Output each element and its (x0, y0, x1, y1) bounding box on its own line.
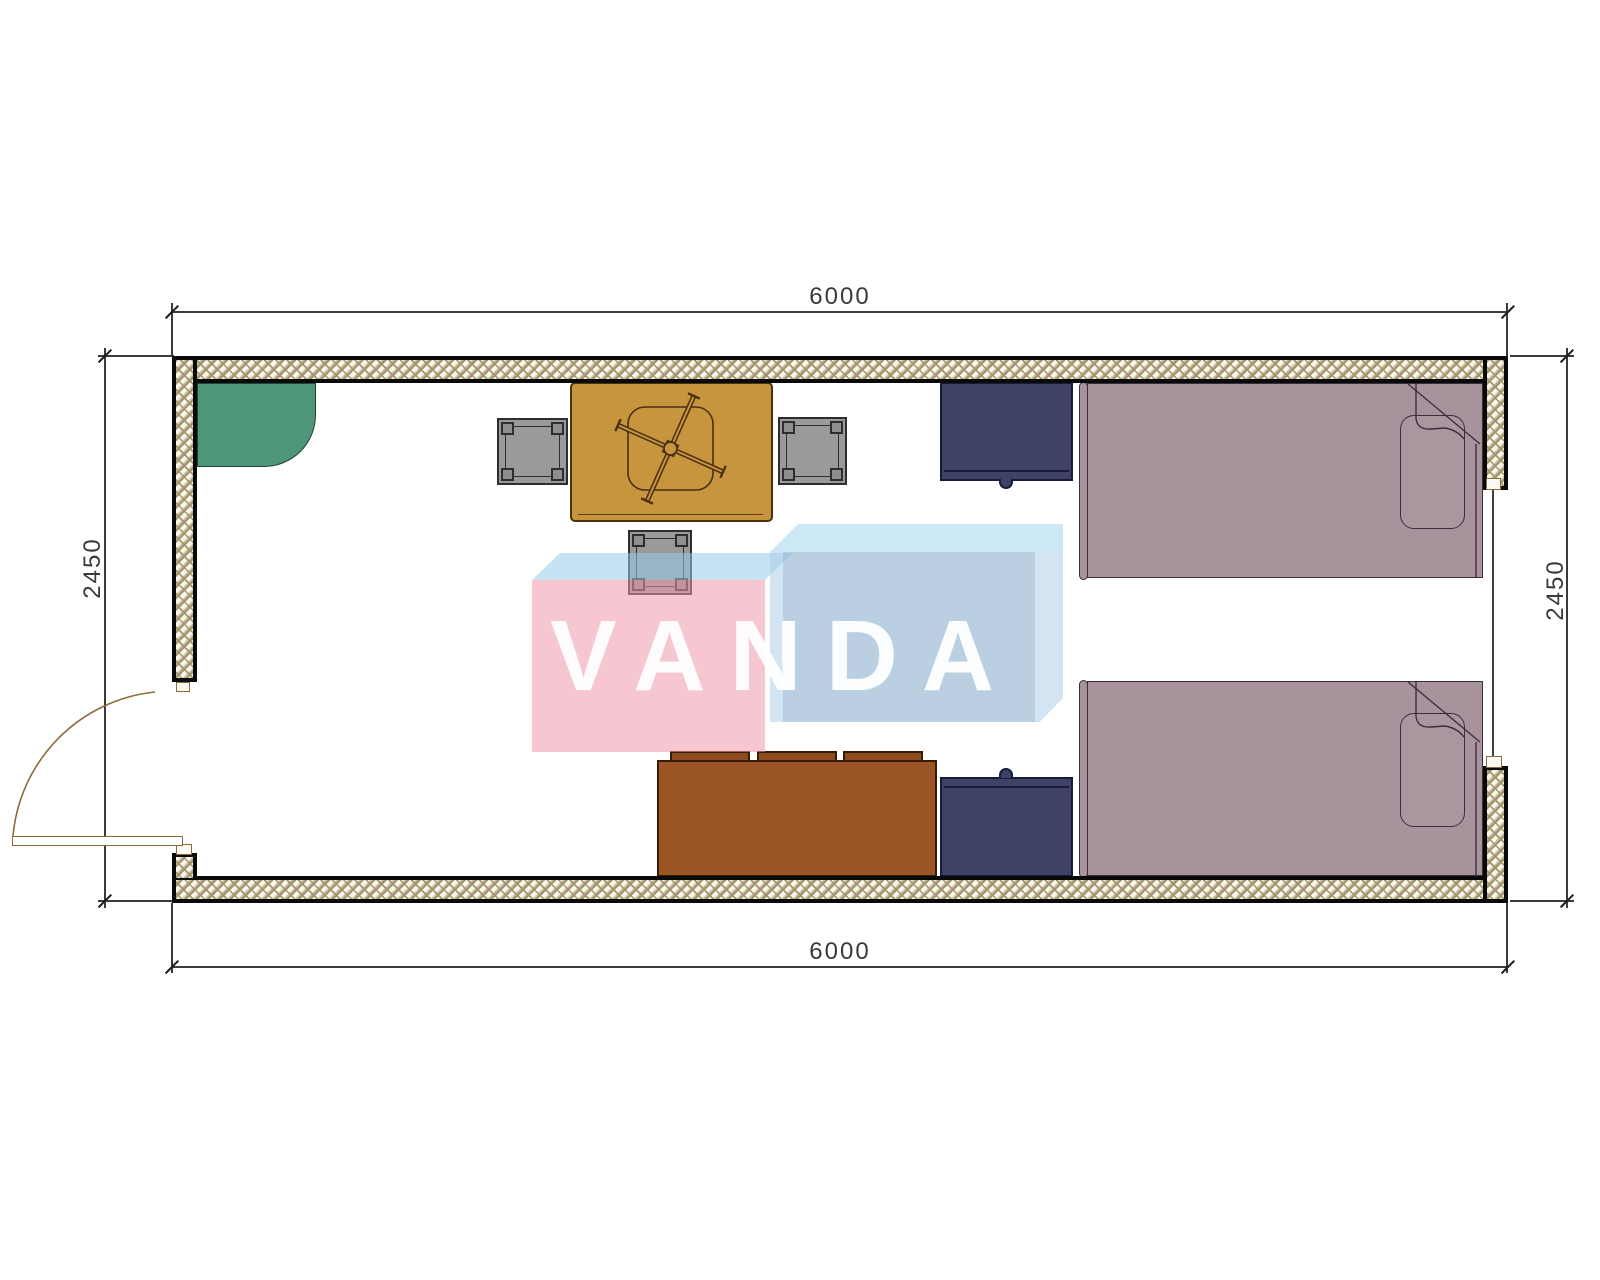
stool-post (551, 422, 564, 435)
bed-pillow (1400, 713, 1465, 827)
watermark-box-top-face (532, 553, 793, 580)
extension-line (171, 903, 173, 973)
wall-left-upper (172, 356, 197, 682)
wall-right-lower (1483, 766, 1508, 903)
dimension-line-bottom (172, 966, 1508, 968)
nightstand-knob (999, 768, 1013, 778)
stool-post (501, 468, 514, 481)
stool-post (830, 421, 843, 434)
wall-right-upper (1483, 356, 1508, 490)
stool-post (782, 468, 795, 481)
table-edge-line (578, 514, 763, 515)
stool-icon (497, 418, 568, 485)
stool-post (830, 468, 843, 481)
table-icon (570, 382, 773, 522)
wall-bottom (172, 876, 1508, 903)
stool-post (551, 468, 564, 481)
nightstand-icon (940, 777, 1073, 877)
stool-post (782, 421, 795, 434)
wall-top (172, 356, 1508, 383)
nightstand-knob (999, 479, 1013, 489)
stool-post (501, 422, 514, 435)
stool-post (675, 534, 688, 547)
window-jamb (1486, 756, 1502, 768)
extension-line (98, 355, 174, 357)
window-jamb (1486, 478, 1501, 490)
dimension-label-bottom: 6000 (788, 938, 892, 966)
door-jamb (176, 682, 190, 692)
door-swing-arc (13, 692, 155, 836)
stool-post (632, 534, 645, 547)
watermark-text: VANDA (550, 606, 1050, 706)
corner-shelf-icon (197, 383, 316, 467)
sofa-icon (657, 760, 937, 877)
dimension-label-left: 2450 (79, 508, 107, 628)
bed-pillow (1400, 415, 1465, 529)
window-glass-line (1492, 490, 1494, 756)
door-leaf-icon (12, 836, 183, 846)
watermark-box-top-face (770, 524, 1063, 552)
nightstand-line (944, 786, 1069, 788)
dimension-label-top: 6000 (788, 283, 892, 311)
floor-plan-canvas: 6000 6000 2450 2450 (0, 0, 1600, 1280)
nightstand-line (944, 470, 1069, 472)
extension-line (98, 900, 174, 902)
stool-icon (778, 417, 847, 485)
wall-left-lower-stub (172, 853, 197, 878)
dimension-label-right: 2450 (1542, 530, 1570, 650)
nightstand-icon (940, 382, 1073, 481)
dimension-line-left (104, 348, 106, 908)
dimension-line-top (172, 311, 1508, 313)
extension-line (1506, 903, 1508, 973)
